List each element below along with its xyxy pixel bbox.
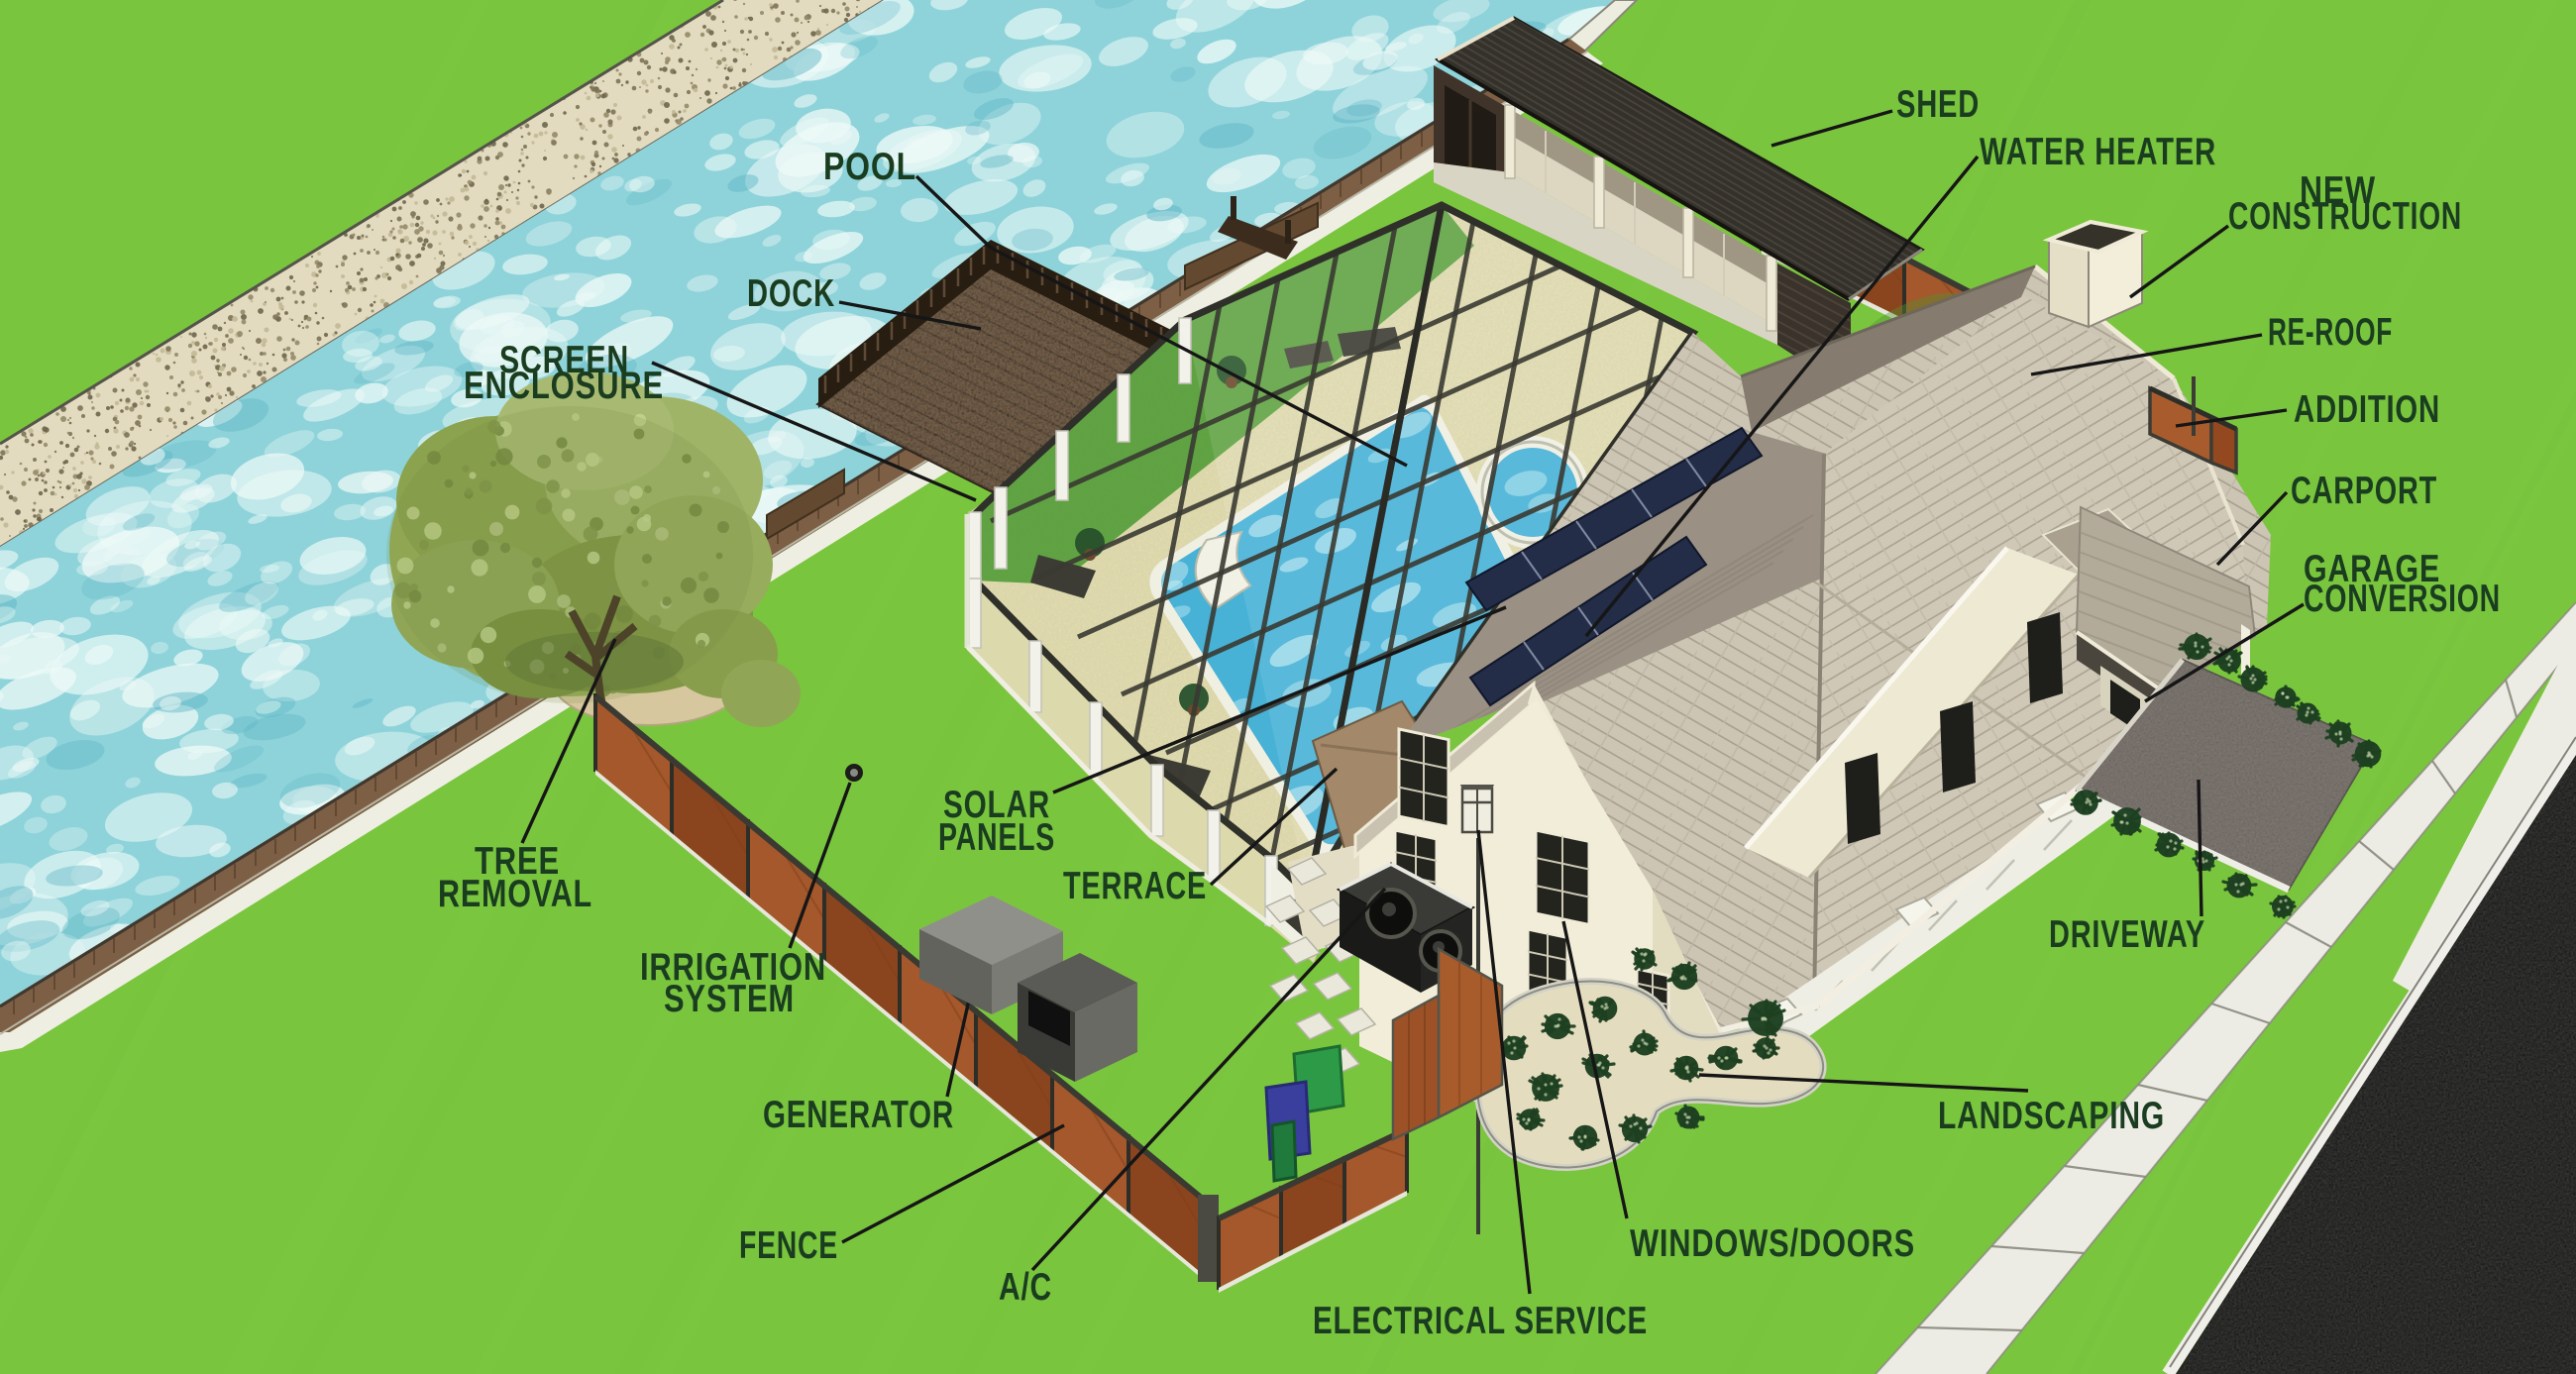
svg-text:CONSTRUCTION: CONSTRUCTION	[2228, 195, 2462, 238]
svg-text:CONVERSION: CONVERSION	[2304, 578, 2501, 620]
svg-text:ELECTRICAL SERVICE: ELECTRICAL SERVICE	[1313, 1300, 1648, 1342]
svg-text:ENCLOSURE: ENCLOSURE	[464, 365, 664, 407]
svg-text:CARPORT: CARPORT	[2291, 470, 2437, 512]
svg-text:SHED: SHED	[1896, 83, 1980, 126]
svg-text:DOCK: DOCK	[747, 272, 835, 315]
svg-text:LANDSCAPING: LANDSCAPING	[1938, 1095, 2165, 1137]
svg-text:WATER HEATER: WATER HEATER	[1980, 131, 2216, 173]
svg-text:DRIVEWAY: DRIVEWAY	[2049, 913, 2205, 956]
svg-text:POOL: POOL	[823, 146, 916, 188]
svg-text:ADDITION: ADDITION	[2294, 388, 2440, 431]
svg-text:RE-ROOF: RE-ROOF	[2268, 311, 2393, 354]
svg-text:FENCE: FENCE	[739, 1224, 838, 1267]
svg-text:SYSTEM: SYSTEM	[664, 978, 795, 1020]
svg-text:GENERATOR: GENERATOR	[763, 1094, 954, 1136]
svg-text:REMOVAL: REMOVAL	[438, 873, 592, 915]
svg-text:A/C: A/C	[999, 1266, 1052, 1309]
svg-text:PANELS: PANELS	[938, 816, 1055, 859]
svg-text:TERRACE: TERRACE	[1063, 865, 1207, 907]
svg-text:WINDOWS/DOORS: WINDOWS/DOORS	[1630, 1222, 1915, 1265]
